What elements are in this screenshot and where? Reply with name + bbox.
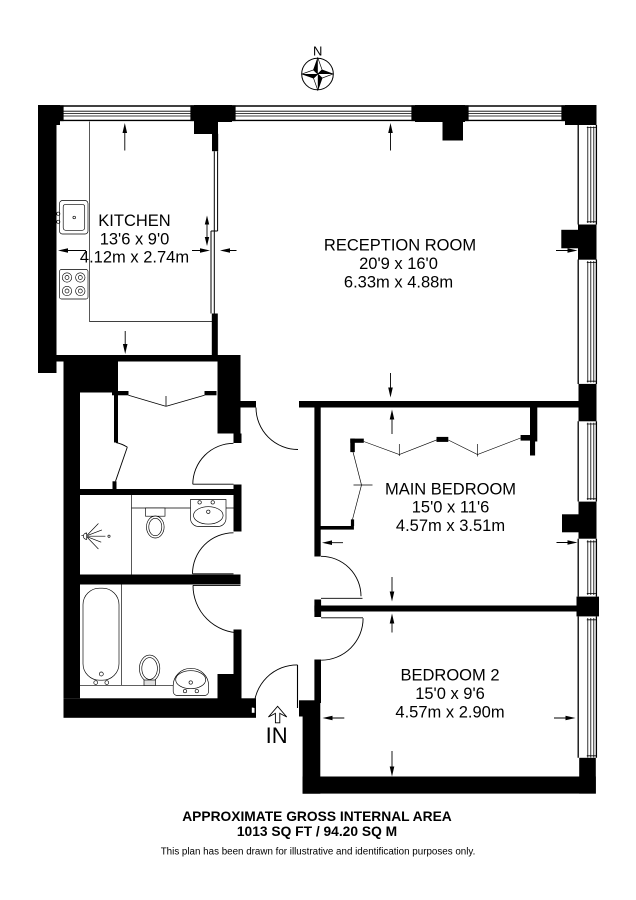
svg-text:MAIN BEDROOM: MAIN BEDROOM — [385, 481, 516, 499]
svg-text:KITCHEN: KITCHEN — [98, 212, 170, 230]
svg-text:4.12m x 2.74m: 4.12m x 2.74m — [80, 249, 189, 267]
svg-text:1013 SQ FT / 94.20 SQ M: 1013 SQ FT / 94.20 SQ M — [237, 824, 397, 839]
svg-text:This plan has been drawn for i: This plan has been drawn for illustrativ… — [161, 847, 476, 858]
svg-text:IN: IN — [266, 723, 288, 748]
svg-text:13'6 x 9'0: 13'6 x 9'0 — [100, 230, 170, 248]
svg-text:4.57m x 2.90m: 4.57m x 2.90m — [395, 704, 504, 722]
svg-text:RECEPTION ROOM: RECEPTION ROOM — [324, 237, 476, 255]
svg-text:N: N — [313, 44, 322, 59]
svg-text:BEDROOM 2: BEDROOM 2 — [400, 667, 499, 685]
svg-text:15'0 x 9'6: 15'0 x 9'6 — [415, 685, 485, 703]
svg-text:4.57m x 3.51m: 4.57m x 3.51m — [396, 517, 505, 535]
svg-text:15'0 x 11'6: 15'0 x 11'6 — [412, 499, 490, 517]
svg-text:6.33m x 4.88m: 6.33m x 4.88m — [344, 274, 453, 292]
svg-text:APPROXIMATE GROSS INTERNAL ARE: APPROXIMATE GROSS INTERNAL AREA — [182, 809, 452, 824]
svg-text:20'9 x 16'0: 20'9 x 16'0 — [359, 255, 438, 273]
